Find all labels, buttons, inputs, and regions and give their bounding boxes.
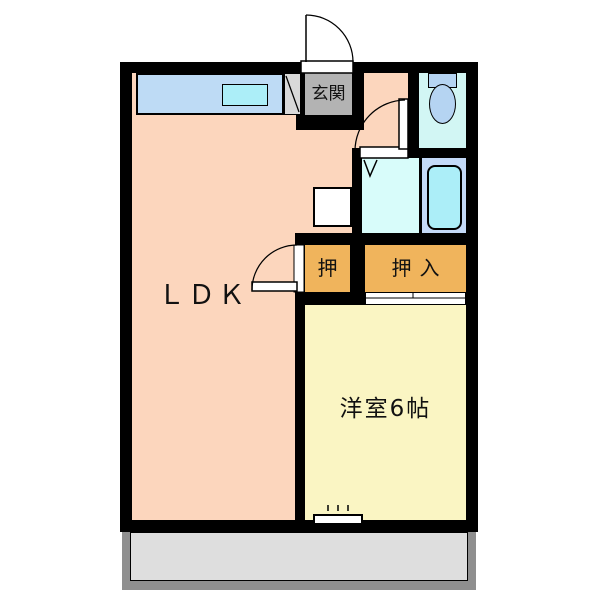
label-genkan: 玄関 — [303, 85, 354, 105]
wall-below-closet — [295, 292, 365, 305]
wall-closet-divider — [350, 245, 365, 292]
entrance-door-arc — [306, 15, 353, 62]
room-washroom — [362, 158, 419, 235]
toilet-bowl — [429, 84, 456, 124]
wall-mid-horizontal — [295, 233, 466, 245]
washing-machine-space — [313, 187, 352, 227]
kitchen-sink — [222, 84, 268, 106]
label-closet-oshiire: 押入 — [365, 257, 466, 280]
label-closet-small: 押 — [305, 257, 350, 280]
kitchen-counter-end — [284, 73, 301, 115]
bathtub — [427, 165, 462, 230]
wall-bath-divider — [419, 158, 422, 235]
oshiire-sliding-door — [365, 292, 466, 305]
western-room-window — [313, 514, 363, 525]
floorplan-canvas: 玄関 ＬＤＫ 押 押入 洋室6帖 — [0, 0, 600, 600]
label-ldk: ＬＤＫ — [133, 280, 273, 311]
wall-hall-toilet — [408, 73, 419, 158]
wall-washroom-left — [352, 148, 362, 235]
wall-genkan-bottom — [296, 115, 364, 130]
wall-ldk-divider — [295, 245, 305, 532]
label-western-room: 洋室6帖 — [305, 396, 466, 422]
wall-toilet-bottom — [352, 148, 466, 158]
balcony-floor — [130, 532, 468, 581]
